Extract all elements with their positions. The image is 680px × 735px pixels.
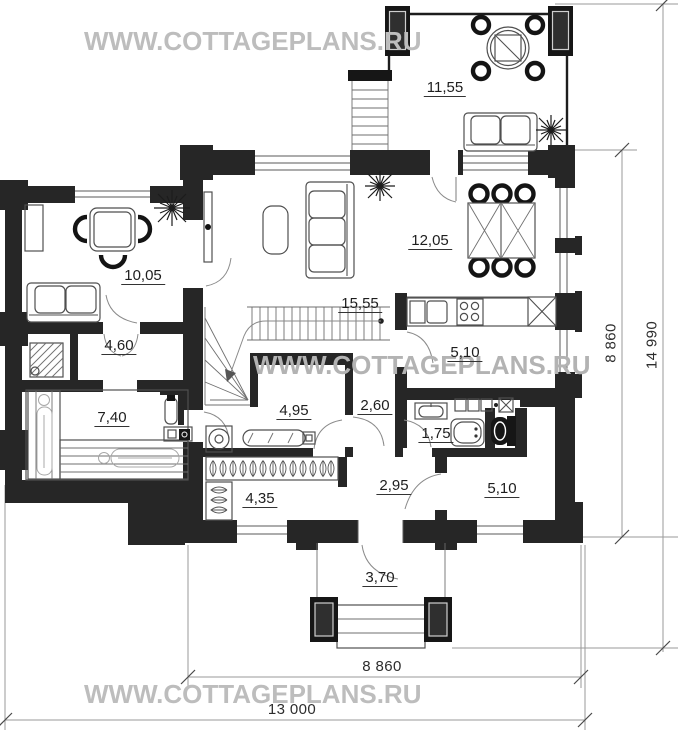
sauna-fixtures xyxy=(26,390,192,480)
guest-room-furniture xyxy=(25,205,150,322)
dimension-bottom-inner: 8 860 xyxy=(362,659,402,674)
cabinet xyxy=(25,205,43,251)
terrace-chair xyxy=(473,63,489,79)
bath-sink xyxy=(415,403,447,419)
chair xyxy=(75,217,87,241)
room-area-label-living: 15,55 xyxy=(338,296,382,313)
washer-box xyxy=(499,398,513,412)
bench xyxy=(243,430,315,446)
living-sofa xyxy=(306,182,354,278)
porch-pillar xyxy=(310,597,338,642)
room-area-label-terrace: 11,55 xyxy=(424,80,466,97)
dimension-bottom-outer: 13 000 xyxy=(268,702,316,717)
room-area-label-hallway: 2,60 xyxy=(357,398,392,415)
person-figure xyxy=(37,395,52,476)
living-room-furniture xyxy=(204,182,354,278)
terrace-furniture xyxy=(464,17,543,151)
watermark-bottom: WWW.COTTAGEPLANS.RU xyxy=(84,681,421,707)
stove xyxy=(457,299,483,325)
toilet xyxy=(491,416,516,446)
dimension-right-outer: 14 990 xyxy=(645,321,660,369)
room-area-label-sauna: 7,40 xyxy=(94,410,129,427)
sink xyxy=(427,301,447,323)
plant xyxy=(536,115,566,145)
watermark-top: WWW.COTTAGEPLANS.RU xyxy=(84,28,421,54)
guest-sofa xyxy=(27,283,100,322)
terrace-sofa xyxy=(464,113,537,151)
chair xyxy=(138,217,150,241)
room-area-label-guest-room: 10,05 xyxy=(121,268,165,285)
dimension-right-inner: 8 860 xyxy=(604,323,619,363)
terrace-chair xyxy=(527,63,543,79)
tv-unit xyxy=(204,192,212,262)
round-table xyxy=(487,27,529,69)
room-area-label-bathroom: 1,75 xyxy=(418,426,453,443)
sauna-bench-bottom xyxy=(60,440,188,479)
chair xyxy=(101,255,125,267)
room-area-label-kitchen: 5,10 xyxy=(447,345,482,362)
terrace-pillar xyxy=(548,6,573,56)
porch-pillar xyxy=(424,597,452,642)
room-area-label-hall: 4,60 xyxy=(101,338,136,355)
terrace-chair xyxy=(473,17,489,33)
room-area-label-entry: 4,35 xyxy=(242,491,277,508)
terrace-chair xyxy=(527,17,543,33)
kitchen-fixtures xyxy=(407,297,556,326)
coffee-table xyxy=(263,206,288,254)
room-area-label-bedroom: 5,10 xyxy=(484,481,519,498)
shower-tray xyxy=(30,343,63,377)
room-area-label-dining: 12,05 xyxy=(408,233,452,250)
dining-furniture xyxy=(468,186,535,276)
floor-plan: WWW.COTTAGEPLANS.RU WWW.COTTAGEPLANS.RU … xyxy=(0,0,680,735)
room-area-label-laundry: 4,95 xyxy=(276,403,311,420)
dining-table xyxy=(468,203,535,258)
coat-rack-vertical xyxy=(206,482,232,520)
entry-fixtures xyxy=(206,457,338,520)
watermark-middle: WWW.COTTAGEPLANS.RU xyxy=(253,352,590,378)
bathtub xyxy=(451,419,484,446)
plant xyxy=(365,171,395,201)
plant xyxy=(154,190,190,226)
terrace-stairs xyxy=(348,70,392,153)
room-area-label-porch: 3,70 xyxy=(362,570,397,587)
sink xyxy=(410,301,425,323)
corner-cabinet xyxy=(528,297,556,326)
square-table xyxy=(90,208,135,251)
room-area-label-corridor: 2,95 xyxy=(376,478,411,495)
